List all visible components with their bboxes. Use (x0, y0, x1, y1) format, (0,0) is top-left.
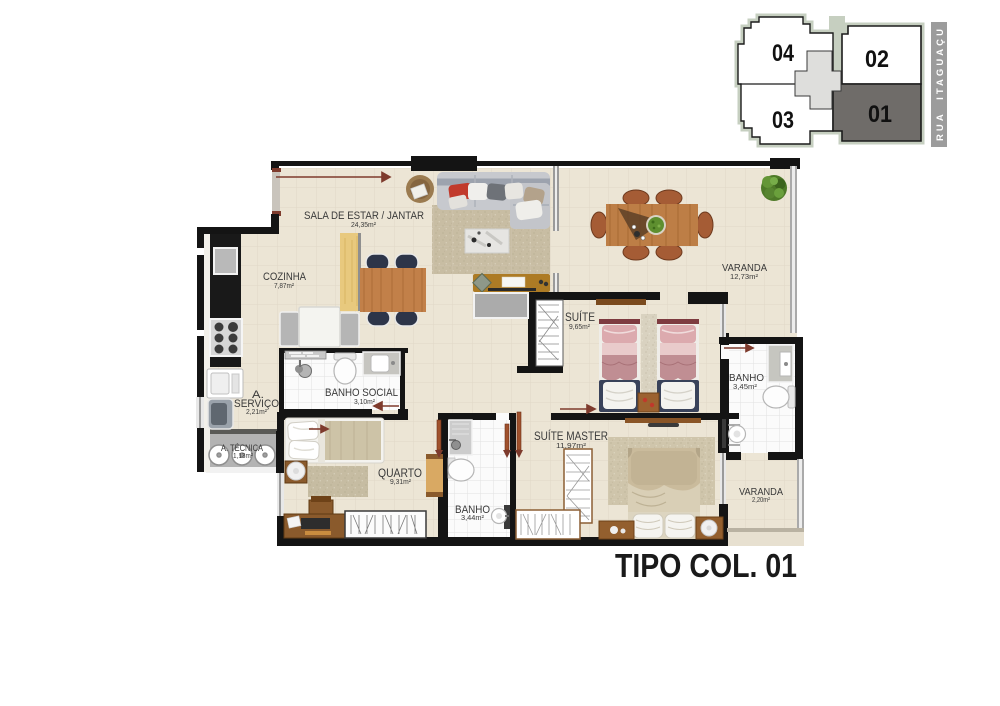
svg-text:04: 04 (772, 40, 795, 67)
svg-text:9,65m²: 9,65m² (569, 322, 590, 331)
svg-text:01: 01 (868, 101, 892, 128)
svg-text:3,44m²: 3,44m² (461, 513, 484, 522)
svg-text:TIPO COL. 01: TIPO COL. 01 (615, 547, 797, 584)
svg-text:1,13m²: 1,13m² (233, 453, 254, 460)
svg-text:24,35m²: 24,35m² (351, 220, 376, 229)
svg-text:7,87m²: 7,87m² (274, 281, 294, 290)
svg-text:A. TÉCNICA: A. TÉCNICA (221, 443, 263, 453)
svg-text:11,97m²: 11,97m² (556, 441, 587, 450)
svg-text:2,20m²: 2,20m² (752, 495, 770, 504)
svg-text:12,73m²: 12,73m² (730, 272, 759, 281)
svg-text:02: 02 (865, 46, 889, 73)
svg-text:3,10m²: 3,10m² (354, 397, 375, 406)
svg-text:2,21m²: 2,21m² (246, 407, 267, 416)
svg-text:3,45m²: 3,45m² (733, 382, 758, 391)
svg-text:9,31m²: 9,31m² (390, 477, 411, 486)
svg-text:03: 03 (772, 107, 794, 134)
